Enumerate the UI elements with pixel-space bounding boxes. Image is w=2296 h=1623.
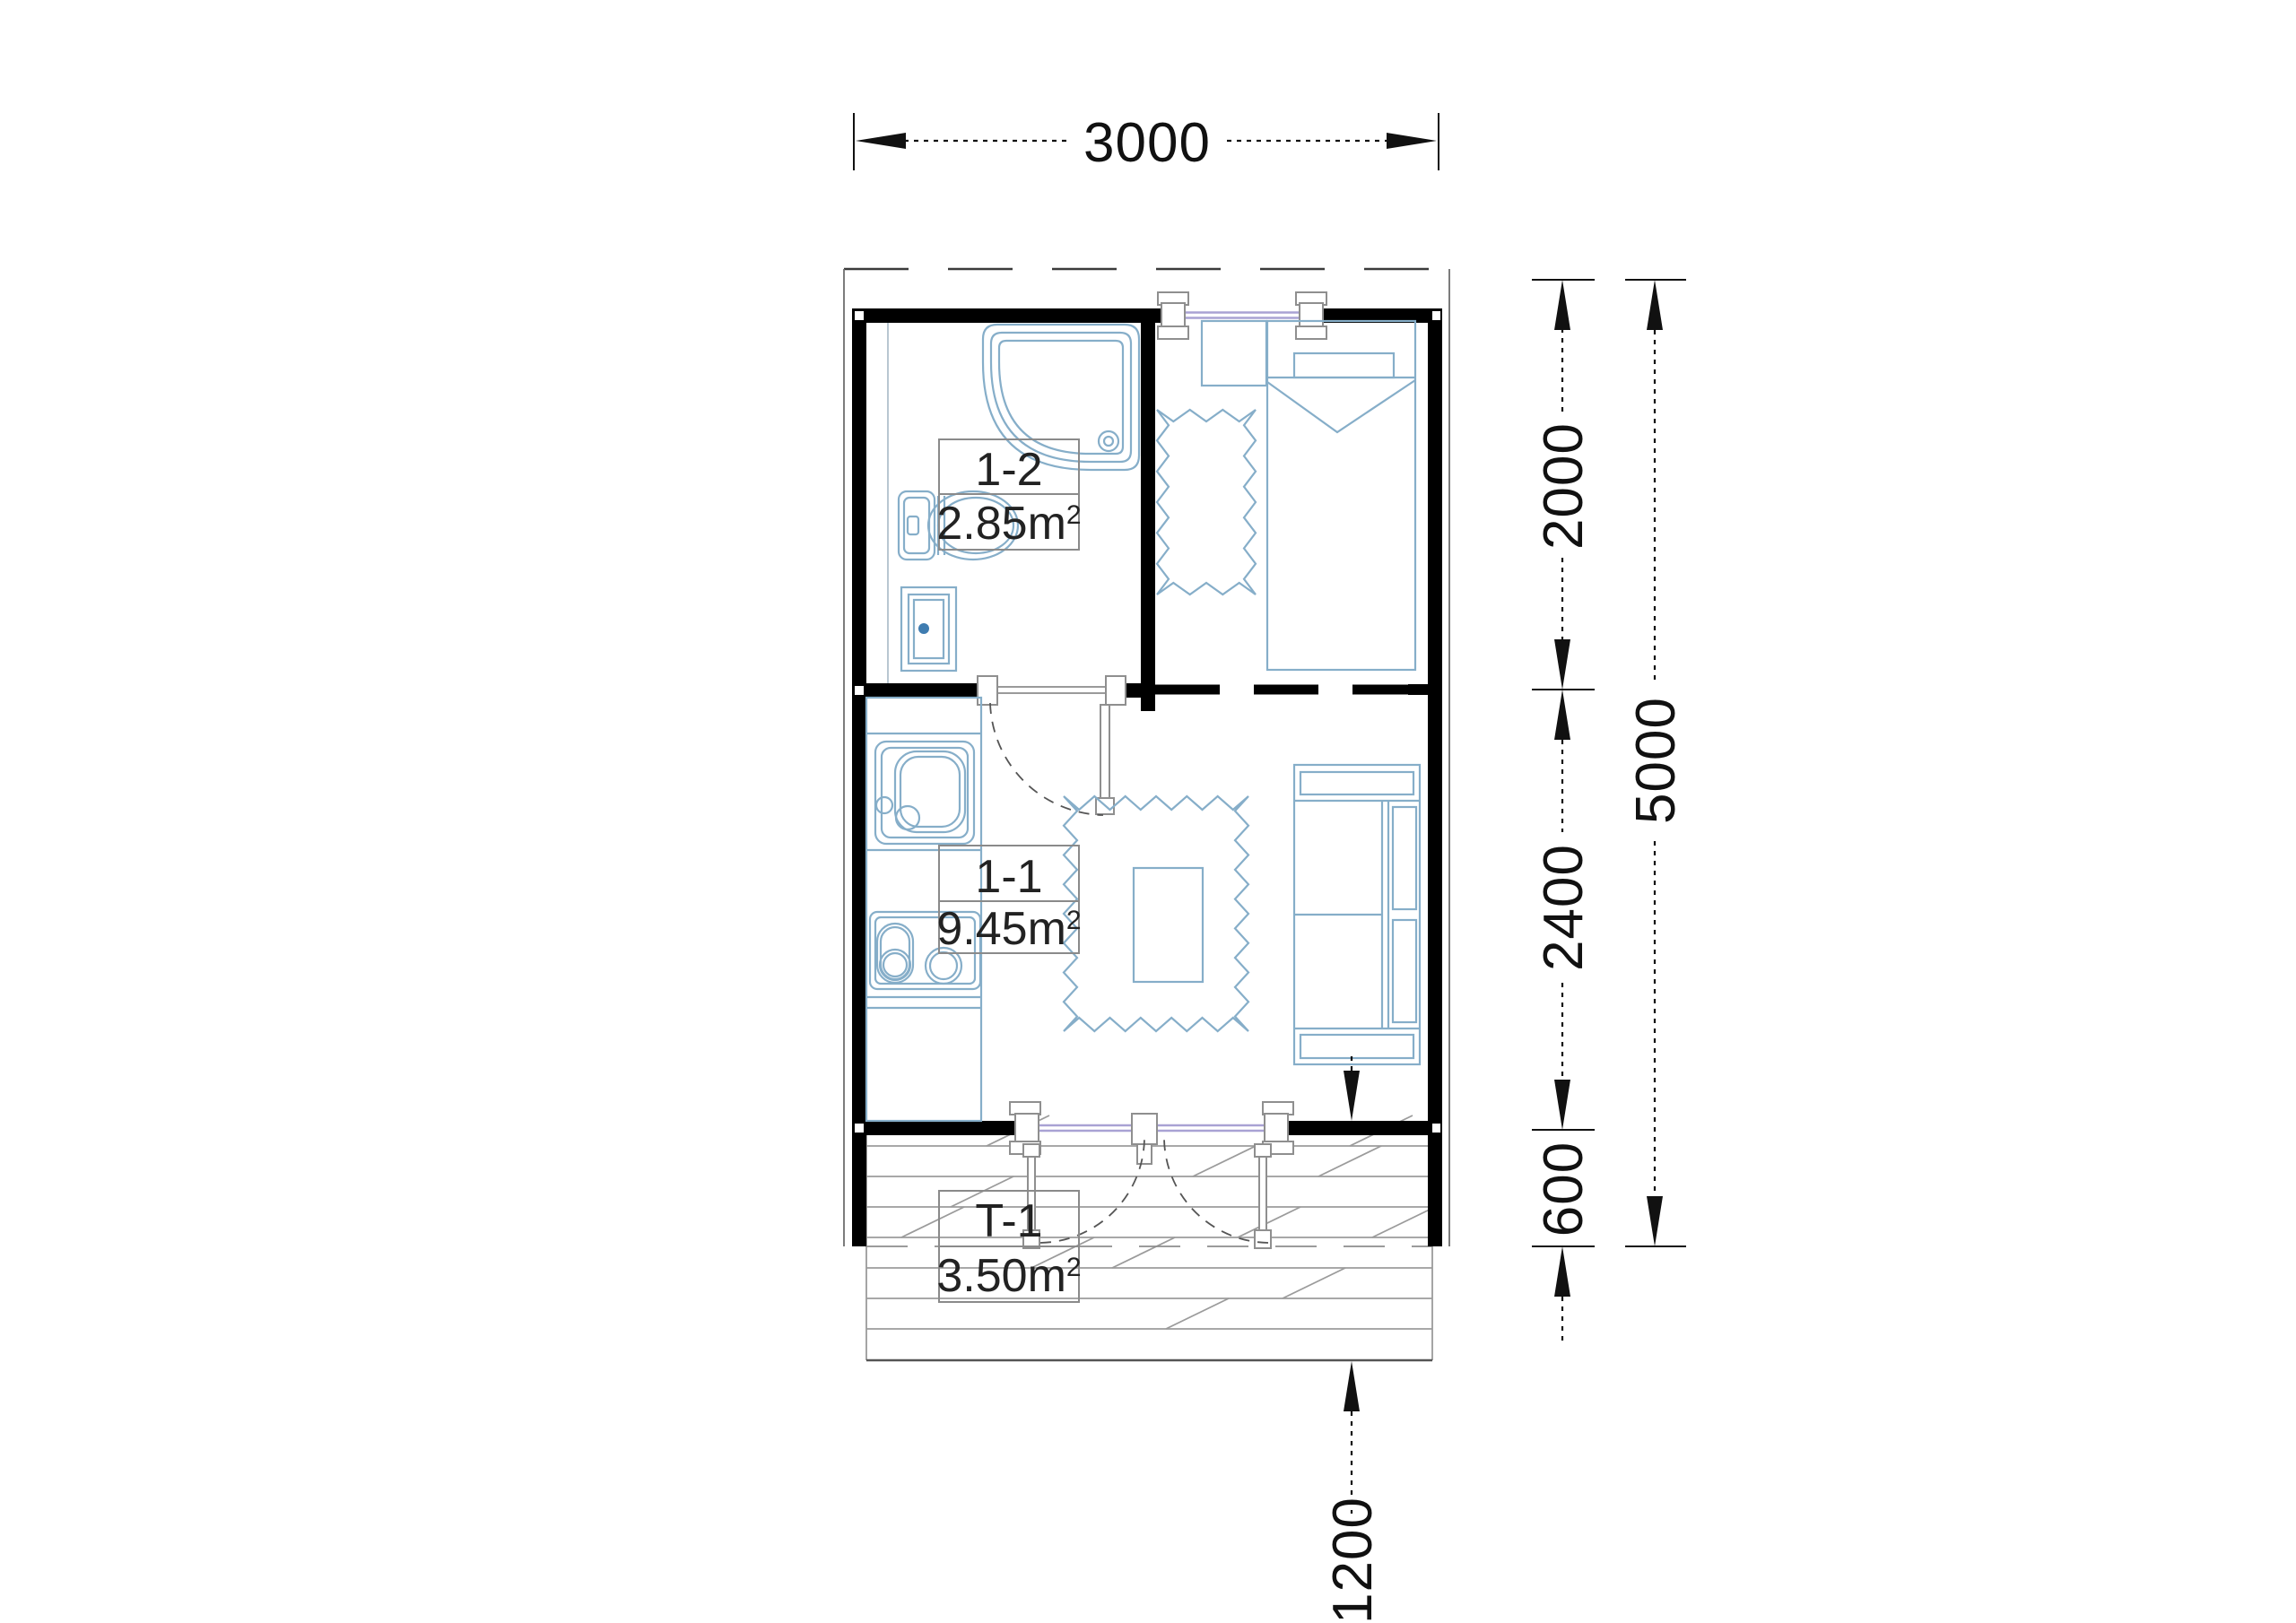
dim-arrow-left <box>856 133 906 149</box>
sofa-icon <box>1294 765 1420 1064</box>
right-wall <box>1428 308 1442 1246</box>
dim-arrow-down <box>1554 1080 1570 1130</box>
top-wall-left-segment <box>852 308 1161 323</box>
room-code: T-1 <box>975 1195 1042 1247</box>
room-label-living: 1-1 9.45m2 <box>936 846 1081 955</box>
kitchen-sink-icon <box>866 733 981 850</box>
door-right-leaf-end <box>1255 1230 1271 1248</box>
room-area-value: 2.85m <box>936 498 1066 550</box>
deck-plank-seam <box>901 1207 964 1237</box>
room-area-value: 9.45m <box>936 903 1066 955</box>
room-area-exponent: 2 <box>1066 1253 1082 1282</box>
interior-door-right-jamb <box>1106 676 1126 705</box>
bottom-wall-left-segment <box>852 1121 1016 1135</box>
door-jamb-tab <box>1010 1102 1040 1115</box>
room-code: 1-2 <box>975 444 1042 496</box>
window-jamb-tab <box>1158 326 1188 339</box>
room-label-bathroom: 1-2 2.85m2 <box>936 439 1081 550</box>
corner-joint-notch <box>855 311 864 320</box>
deck-plank-seam <box>1283 1268 1345 1298</box>
dim-overall-depth: 5000 <box>1625 280 1687 1246</box>
open-boundary-stub <box>1408 684 1428 695</box>
dim-arrow-down <box>1647 1196 1663 1246</box>
door-center-mullion <box>1132 1114 1157 1144</box>
corner-joint-notch <box>855 686 864 695</box>
room-area: 3.50m2 <box>936 1250 1081 1302</box>
dim-value-living-depth: 2400 <box>1533 844 1595 971</box>
dim-value-upper-depth: 2000 <box>1533 422 1595 550</box>
dim-arrow-up <box>1647 280 1663 330</box>
bedroom-window <box>1158 292 1326 339</box>
room-area-value: 3.50m <box>936 1250 1066 1302</box>
corner-joint-notch <box>1432 1124 1440 1133</box>
bathroom-cabinet <box>901 587 956 671</box>
floor-plan-canvas: 1-2 2.85m2 1-1 9.45m2 T-1 3.50m2 3000 <box>0 0 2296 1623</box>
door-left-jamb <box>1015 1114 1039 1142</box>
dim-value-total-depth: 5000 <box>1625 697 1687 824</box>
interior-door-leaf-open <box>1100 705 1109 798</box>
dim-arrow-right <box>1387 133 1437 149</box>
floor-plan-drawing: 1-2 2.85m2 1-1 9.45m2 T-1 3.50m2 3000 <box>0 0 2296 1623</box>
interior-wall-left-segment <box>866 683 987 698</box>
coffee-table <box>1134 868 1203 982</box>
bathroom-bedroom-divider-wall <box>1141 323 1155 711</box>
bottom-wall-right-segment <box>1289 1121 1442 1135</box>
dim-arrow-up <box>1554 690 1570 740</box>
deck-plank-seam <box>1112 1237 1175 1268</box>
deck-plank-seam <box>1318 1146 1381 1176</box>
dim-overall-width: 3000 <box>854 112 1439 174</box>
bedroom-open-boundary <box>1155 684 1428 695</box>
door-right-leaf-open <box>1259 1157 1266 1232</box>
bedroom-rug <box>1157 410 1256 595</box>
left-wall <box>852 308 866 1246</box>
interior-door-swing-arc <box>990 703 1103 815</box>
door-right-jamb <box>1265 1114 1288 1142</box>
terrace-double-door <box>1010 1102 1293 1248</box>
interior-door <box>978 676 1126 815</box>
dim-arrow-up <box>1554 280 1570 330</box>
dim-arrow-down <box>1554 639 1570 690</box>
deck-plank-seam <box>1372 1207 1435 1237</box>
dim-value-terrace-depth: 1200 <box>1322 1497 1384 1623</box>
door-jamb-tab <box>1263 1102 1293 1115</box>
dim-right-chain: 2000 2400 600 <box>1532 280 1595 1341</box>
bedroom <box>1157 321 1415 670</box>
room-area-exponent: 2 <box>1066 906 1082 935</box>
door-right-swing-arc <box>1164 1139 1268 1243</box>
dim-arrow-up <box>1344 1361 1360 1411</box>
door-right-hinge <box>1255 1144 1271 1157</box>
room-area-exponent: 2 <box>1066 500 1082 530</box>
dim-arrow-down <box>1344 1071 1360 1121</box>
window-jamb-tab <box>1296 326 1326 339</box>
living-room-rug <box>1064 796 1248 1031</box>
room-code: 1-1 <box>975 851 1042 903</box>
bedside-table <box>1202 321 1266 386</box>
living-room <box>1064 765 1420 1064</box>
room-labels: 1-2 2.85m2 1-1 9.45m2 T-1 3.50m2 <box>936 439 1081 1302</box>
dim-terrace-depth: 1200 <box>1322 1056 1384 1623</box>
room-area: 9.45m2 <box>936 903 1081 955</box>
dim-value-overhang: 600 <box>1533 1141 1595 1237</box>
room-area: 2.85m2 <box>936 498 1081 550</box>
deck-plank-seam <box>1193 1146 1256 1176</box>
dim-arrow-up <box>1554 1246 1570 1297</box>
corner-joint-notch <box>855 1124 864 1133</box>
corner-joint-notch <box>1432 311 1440 320</box>
dim-value-width: 3000 <box>1083 112 1211 174</box>
door-left-hinge <box>1023 1144 1039 1157</box>
bed-icon <box>1267 321 1415 670</box>
deck-plank-seam <box>1166 1298 1229 1329</box>
